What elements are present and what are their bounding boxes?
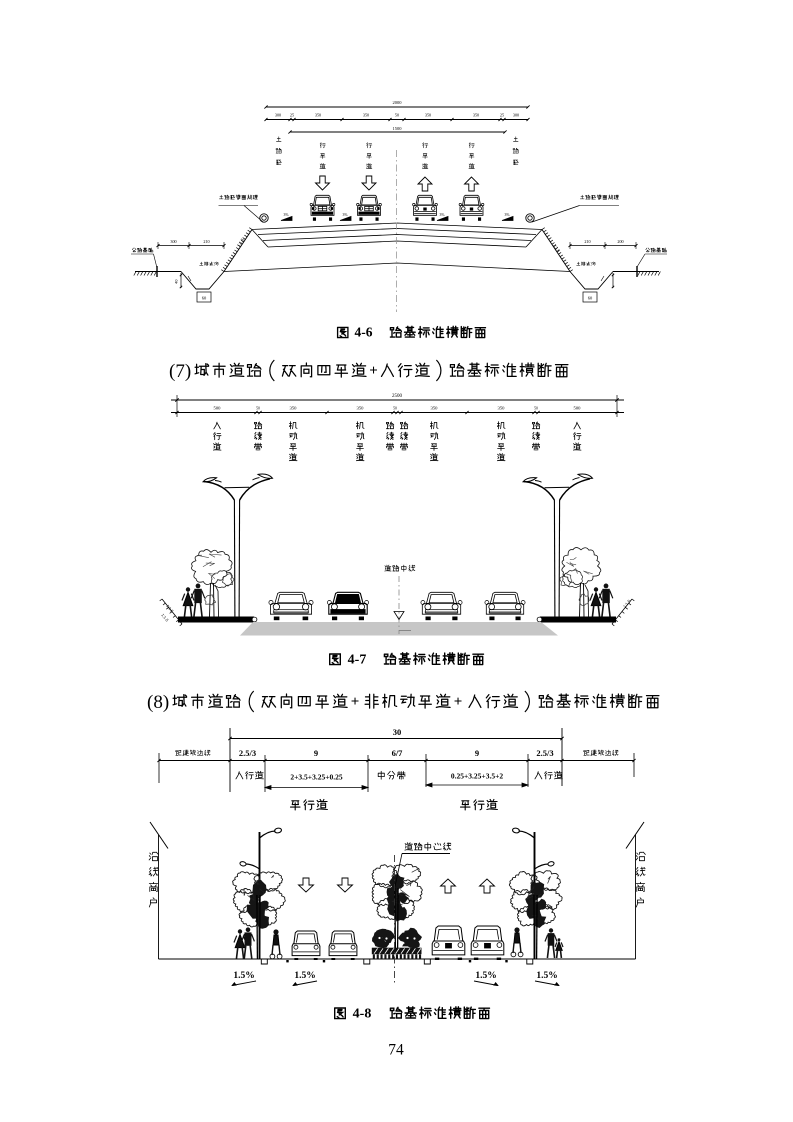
svg-text:1.5%: 1.5% bbox=[475, 971, 496, 981]
svg-text:2000: 2000 bbox=[393, 100, 403, 105]
svg-text:350: 350 bbox=[425, 113, 431, 118]
svg-text:9: 9 bbox=[314, 748, 318, 758]
svg-text:9: 9 bbox=[475, 748, 479, 758]
svg-text:3%: 3% bbox=[283, 213, 289, 217]
svg-text:1.5%: 1.5% bbox=[294, 971, 315, 981]
svg-text:+: + bbox=[454, 694, 463, 710]
svg-text:350: 350 bbox=[357, 406, 365, 411]
svg-text:350: 350 bbox=[431, 406, 439, 411]
svg-text:1500: 1500 bbox=[393, 126, 403, 131]
svg-text:74: 74 bbox=[388, 1042, 404, 1059]
svg-text:40: 40 bbox=[174, 279, 179, 284]
svg-text:2+3.5+3.25+0.25: 2+3.5+3.25+0.25 bbox=[290, 773, 342, 782]
svg-text:6/7: 6/7 bbox=[392, 748, 404, 758]
svg-text:50: 50 bbox=[393, 407, 397, 411]
svg-text:1.5%: 1.5% bbox=[233, 971, 254, 981]
svg-text:4-8: 4-8 bbox=[353, 1007, 372, 1022]
svg-text:+: + bbox=[351, 694, 360, 710]
svg-text:350: 350 bbox=[290, 406, 298, 411]
svg-text:2500: 2500 bbox=[392, 394, 403, 399]
svg-text:3%: 3% bbox=[439, 213, 445, 217]
svg-text:3%: 3% bbox=[504, 213, 510, 217]
svg-text:+: + bbox=[369, 363, 378, 379]
svg-text:(7): (7) bbox=[169, 361, 191, 382]
svg-text:4-7: 4-7 bbox=[348, 653, 367, 668]
svg-text:210: 210 bbox=[203, 239, 209, 244]
svg-text:350: 350 bbox=[473, 113, 479, 118]
svg-text:50: 50 bbox=[395, 113, 399, 118]
svg-text:300: 300 bbox=[513, 113, 519, 118]
svg-text:30: 30 bbox=[393, 727, 402, 737]
svg-text:350: 350 bbox=[315, 113, 321, 118]
svg-text:2.5/3: 2.5/3 bbox=[239, 748, 256, 758]
svg-text:0.25+3.25+3.5+2: 0.25+3.25+3.5+2 bbox=[451, 772, 503, 781]
svg-text:300: 300 bbox=[275, 113, 281, 118]
svg-text:500: 500 bbox=[214, 406, 222, 411]
svg-text:4-6: 4-6 bbox=[355, 325, 373, 340]
svg-text:1.5%: 1.5% bbox=[536, 971, 557, 981]
svg-text:500: 500 bbox=[574, 406, 582, 411]
svg-text:350: 350 bbox=[498, 406, 506, 411]
svg-text:25: 25 bbox=[500, 113, 504, 118]
svg-text:200: 200 bbox=[617, 239, 623, 244]
svg-text:210: 210 bbox=[584, 239, 590, 244]
svg-text:60: 60 bbox=[588, 296, 593, 301]
svg-text:300: 300 bbox=[170, 239, 176, 244]
svg-text:60: 60 bbox=[202, 296, 207, 301]
svg-text:3%: 3% bbox=[342, 213, 348, 217]
svg-text:50: 50 bbox=[256, 407, 260, 411]
svg-text:2.5/3: 2.5/3 bbox=[536, 748, 553, 758]
svg-text:(8): (8) bbox=[147, 692, 169, 713]
svg-text:25: 25 bbox=[290, 113, 294, 118]
svg-text:350: 350 bbox=[363, 113, 369, 118]
svg-text:50: 50 bbox=[534, 407, 538, 411]
